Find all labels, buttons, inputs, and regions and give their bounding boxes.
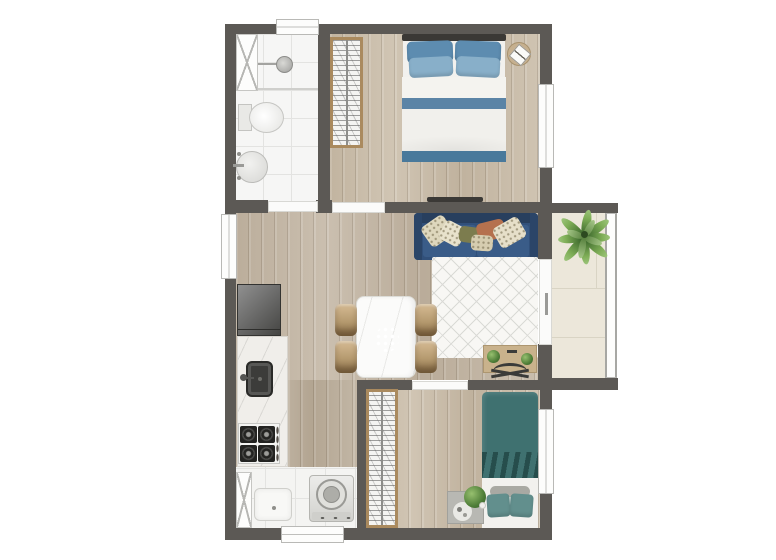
kitchen-sink (246, 361, 273, 397)
top-wall (225, 24, 552, 34)
hall-wall-a (236, 200, 268, 213)
faucet-handle (237, 152, 241, 156)
sink-spout (233, 164, 244, 167)
hall-wall-b (316, 200, 332, 213)
sofa-arm-left (414, 213, 422, 260)
bedroom1-window (538, 84, 554, 168)
double-bed (402, 34, 506, 164)
left-window (221, 214, 237, 279)
bottom-wall (225, 528, 552, 540)
shower-box (236, 34, 258, 91)
desk-item (507, 350, 517, 353)
bedroom2-top-wall-right (468, 380, 542, 390)
refrigerator (237, 284, 281, 336)
balcony-plant (553, 206, 615, 268)
washer-panel (312, 512, 351, 520)
living-rug (432, 257, 538, 358)
faucet-handle (237, 176, 241, 180)
tray-item (457, 507, 462, 512)
bed-duvet (402, 109, 506, 151)
bed2-duvet-folds (482, 452, 538, 478)
dining-chair (415, 341, 437, 373)
balcony-tile-line (548, 337, 607, 338)
balcony-bottom-wall (552, 378, 618, 390)
burner (240, 445, 257, 462)
throw-pillow-beige-small (470, 234, 493, 251)
bed-blue-band (402, 98, 506, 109)
bed-headboard (402, 34, 506, 41)
laundry-tub (254, 488, 292, 521)
balcony-tile-line (548, 288, 607, 289)
shower-head (276, 56, 293, 73)
wardrobe-divider (346, 40, 348, 145)
sink-drain (258, 377, 262, 381)
bed-footer-band (402, 151, 506, 162)
bed2-pillow-teal (509, 493, 534, 518)
washer-drum-inner (323, 486, 340, 503)
dining-chair (415, 304, 437, 336)
bedroom1-door (332, 202, 385, 213)
bed-pillow-light (409, 56, 454, 78)
bed2-pillow-teal (486, 493, 511, 518)
dining-chair (335, 341, 357, 373)
plant-pot (479, 502, 486, 509)
fridge-seam (238, 329, 280, 330)
bedroom2-window (538, 409, 554, 494)
bed-sheet (402, 77, 506, 99)
plant-center (581, 231, 588, 238)
bedroom1-wardrobe (330, 37, 363, 148)
bedroom2-door (412, 381, 468, 390)
service-door (281, 526, 344, 543)
bedroom2-left-wall (357, 380, 366, 528)
bathroom-door (268, 201, 318, 212)
bed-pillow-light (456, 56, 501, 78)
burner (258, 445, 275, 462)
burner (240, 426, 257, 443)
wardrobe-divider (381, 392, 383, 525)
left-wall (225, 24, 236, 540)
living-balcony-wall-lower (538, 344, 552, 390)
shower-glass-partition (258, 88, 318, 90)
laundry-cabinet (236, 472, 252, 528)
toilet-bowl (249, 102, 284, 133)
stove (238, 423, 280, 464)
stove-knobs (276, 426, 279, 462)
tub-drain (272, 506, 276, 510)
bedroom1-nightstand (507, 42, 531, 66)
burner (258, 426, 275, 443)
sliding-door-handle (545, 293, 548, 315)
table-centerpiece-plant (375, 326, 399, 352)
bed2-duvet (482, 392, 538, 456)
sofa-arm-right (530, 213, 538, 260)
bathroom-window (276, 19, 319, 35)
dining-chair (335, 304, 357, 336)
tray-item (463, 513, 467, 517)
hall-wall-c (385, 202, 552, 213)
floor-plan (0, 0, 776, 560)
washing-machine (309, 475, 354, 522)
desk-plant (487, 350, 500, 363)
desk-chair (489, 363, 531, 381)
bedroom2-wardrobe (366, 389, 398, 528)
bathroom-bedroom1-wall (318, 34, 330, 213)
bedroom1-tv (427, 197, 483, 202)
balcony-sliding-door (539, 259, 552, 345)
living-balcony-wall-upper (538, 213, 552, 259)
kitchen-faucet-stem (245, 377, 254, 379)
single-bed (482, 392, 538, 528)
